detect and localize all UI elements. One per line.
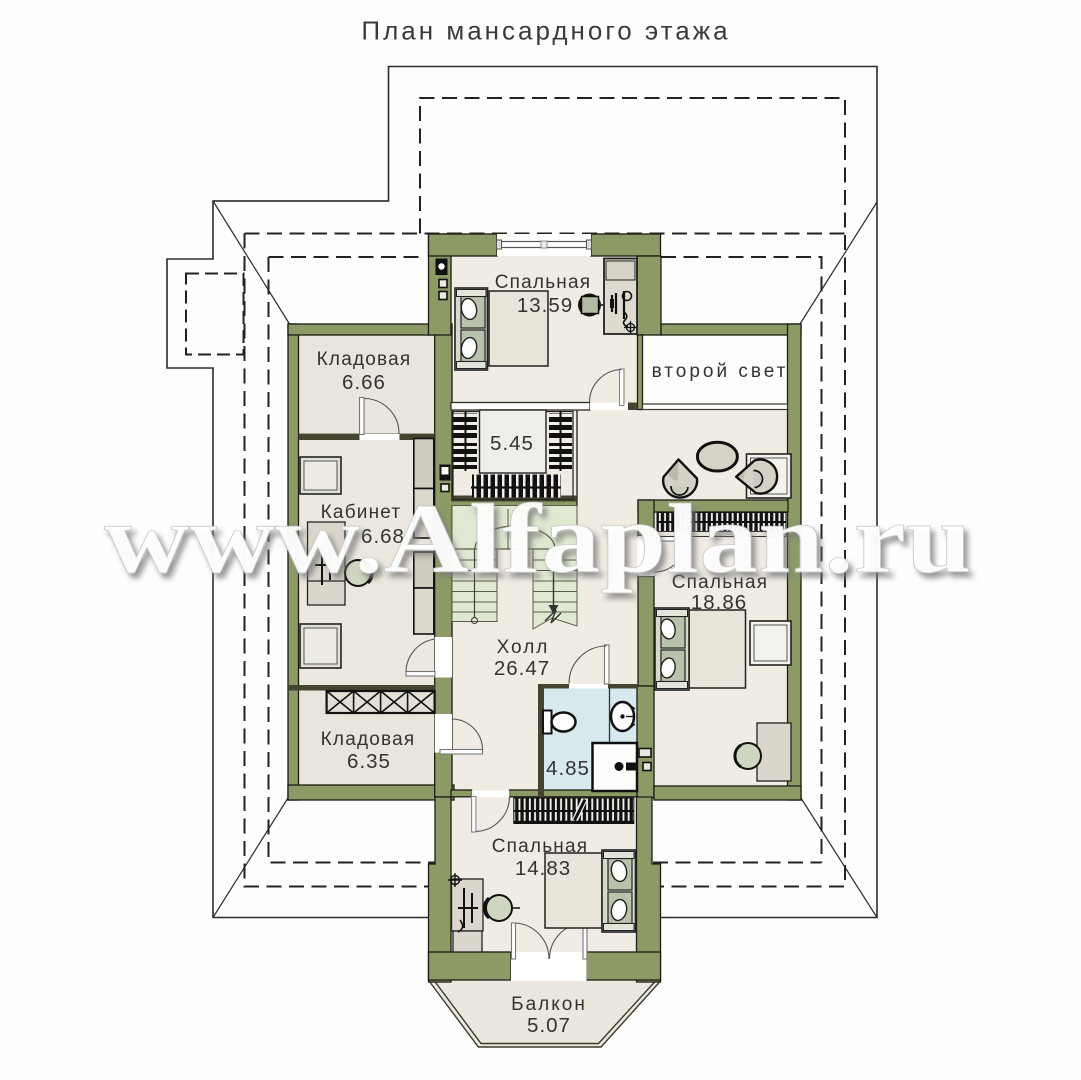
svg-text:Кладовая: Кладовая [317,349,412,370]
svg-text:Кладовая: Кладовая [321,729,416,750]
svg-text:6.66: 6.66 [342,371,386,394]
svg-text:5.07: 5.07 [527,1014,571,1037]
svg-text:Спальная: Спальная [495,272,592,293]
svg-text:6.35: 6.35 [347,750,391,773]
svg-text:18.86: 18.86 [691,591,747,614]
svg-text:второй свет: второй свет [652,361,789,382]
svg-text:www.Alfaplan.ru: www.Alfaplan.ru [104,483,972,594]
svg-text:14.83: 14.83 [515,857,571,880]
svg-text:План мансардного этажа: План мансардного этажа [361,16,730,46]
svg-text:Спальная: Спальная [492,836,589,857]
svg-text:26.47: 26.47 [494,657,550,680]
svg-text:5.45: 5.45 [490,432,534,455]
svg-text:Холл: Холл [497,637,550,658]
svg-text:Балкон: Балкон [511,994,587,1015]
svg-text:4.85: 4.85 [546,757,590,780]
svg-text:13.59: 13.59 [517,294,573,317]
